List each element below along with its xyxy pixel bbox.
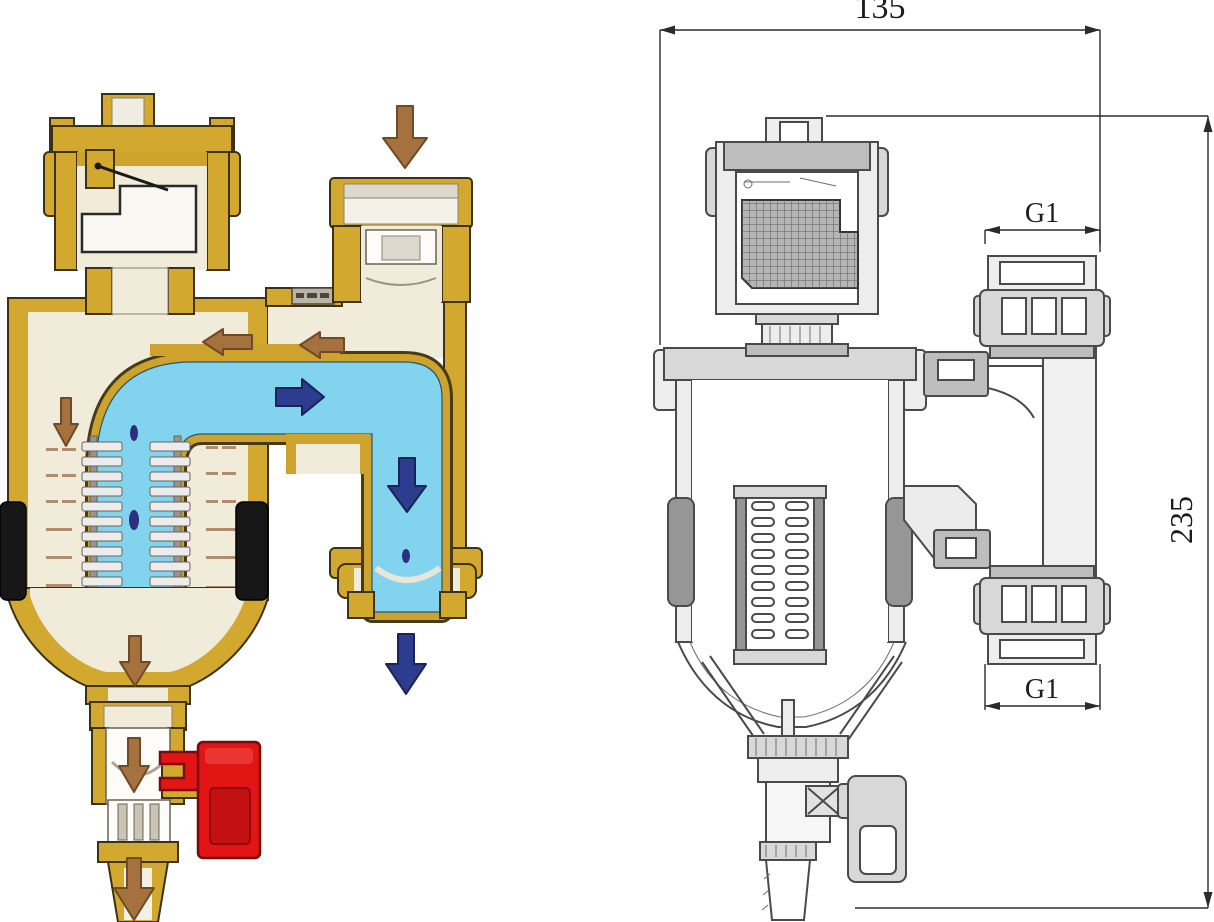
- channel-under-bracket-bore: [296, 444, 360, 474]
- drain-union-bore: [104, 706, 172, 728]
- embossed-marking: [292, 288, 334, 304]
- bottom-port-thread-label: G1: [1025, 674, 1059, 705]
- drain-vane: [118, 804, 127, 840]
- vent-top-flange: [52, 126, 232, 154]
- drawing-hose-barb: [766, 860, 810, 920]
- inlet-wall-left: [333, 226, 361, 302]
- handle-highlight: [205, 748, 253, 764]
- magnet-left: [0, 502, 26, 600]
- vent-wall-right: [207, 152, 229, 270]
- droplet-icon: [130, 425, 138, 441]
- droplet-icon: [129, 510, 139, 530]
- drain-vane: [150, 804, 159, 840]
- vent-neck-bore: [112, 268, 168, 314]
- overall-width-dimension-label: 135: [855, 0, 906, 26]
- drawing-air-vent: [706, 118, 888, 346]
- magnet-right: [236, 502, 268, 600]
- filter-diagram-canvas: 135 235 G1 G1: [0, 0, 1214, 922]
- inlet-port-assembly: [330, 178, 472, 302]
- top-port-thread-label: G1: [1025, 198, 1059, 229]
- outlet-tail-right: [440, 592, 466, 618]
- outlet-tail-left: [348, 592, 374, 618]
- droplet-icon: [402, 549, 410, 563]
- vent-wall-left: [55, 152, 77, 270]
- handle-panel: [210, 788, 250, 844]
- inlet-union-seat: [344, 184, 458, 198]
- inlet-insert-core: [382, 236, 420, 260]
- vent-lever-pivot: [95, 163, 102, 170]
- drain-flange-bore: [108, 688, 168, 702]
- vent-neck-right: [168, 268, 194, 314]
- vent-neck-left: [86, 268, 112, 314]
- inlet-wall-right: [442, 226, 470, 302]
- drawing-magnet-left: [668, 498, 694, 606]
- drain-vane: [134, 804, 143, 840]
- overall-height-dimension-label: 235: [1163, 496, 1199, 544]
